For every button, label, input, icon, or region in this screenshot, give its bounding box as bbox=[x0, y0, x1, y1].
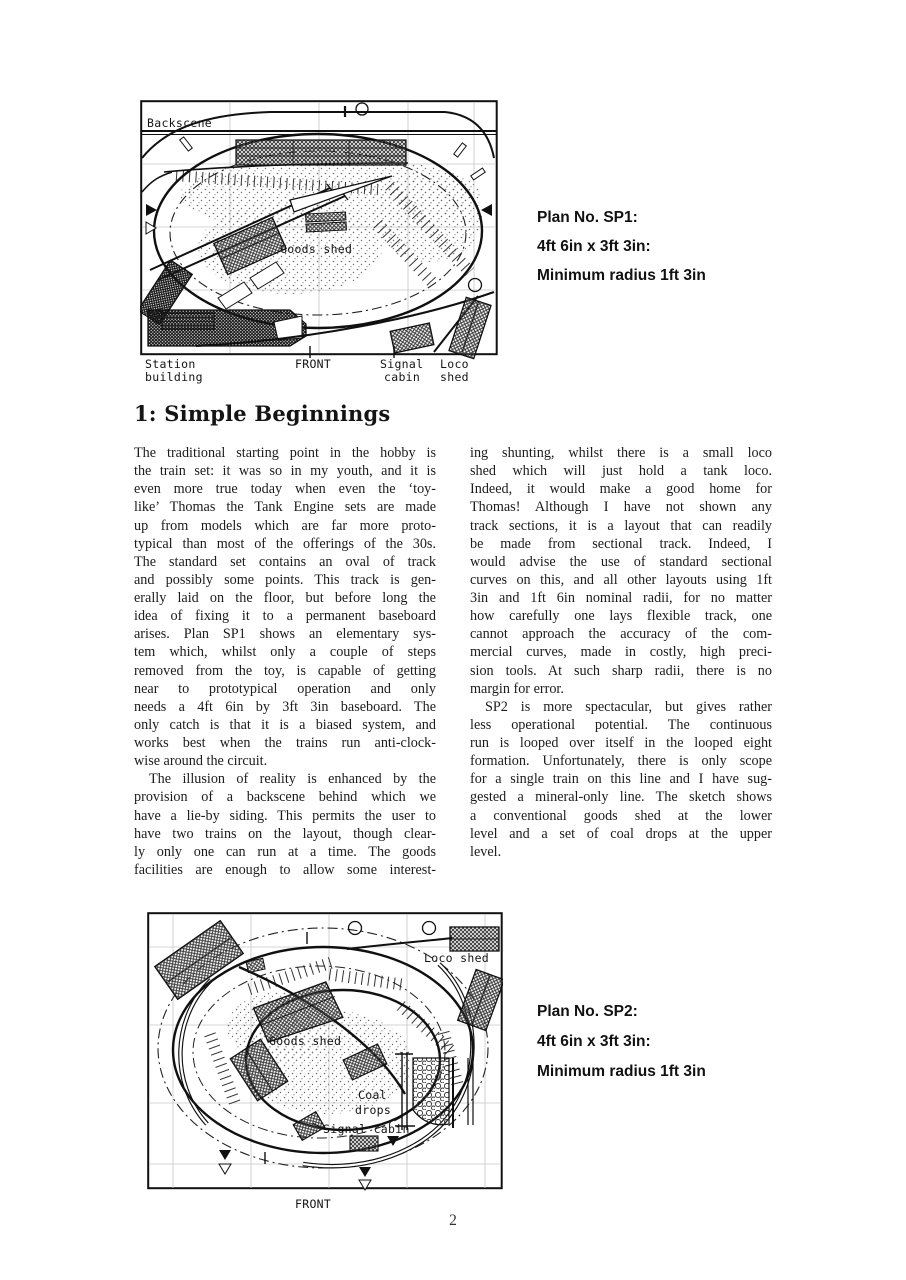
text-line: The illusion of reality is enhanced by t… bbox=[134, 770, 436, 788]
text-line: Thomas! Although I have not shown any bbox=[470, 498, 772, 516]
text-line: be made from sectional track. Indeed, I bbox=[470, 535, 772, 553]
text-line: less operational potential. The continuo… bbox=[470, 716, 772, 734]
sp1-label-goods-shed: Goods shed bbox=[280, 242, 352, 256]
text-line: 3in and 1ft 6in nominal radii, for no ma… bbox=[470, 589, 772, 607]
sp1-label-station-1: Station bbox=[145, 357, 196, 371]
text-line: have two trains on the layout, though cl… bbox=[134, 825, 436, 843]
book-page: Backscene Goods shed Station building FR… bbox=[0, 0, 906, 1280]
text-line: curves on this, and all other layouts us… bbox=[470, 571, 772, 589]
text-line: how carefully one lays flexible track, o… bbox=[470, 607, 772, 625]
text-line: gested a mineral-only line. The sketch s… bbox=[470, 788, 772, 806]
text-line: cannot approach the accuracy of the com- bbox=[470, 625, 772, 643]
sp2-caption-line2: 4ft 6in x 3ft 3in: bbox=[537, 1027, 706, 1057]
sp2-label-loco-shed: Loco shed bbox=[424, 951, 489, 965]
sp2-small-building bbox=[350, 1136, 378, 1151]
text-line: shed which will just hold a tank loco. bbox=[470, 462, 772, 480]
page-number: 2 bbox=[0, 1212, 906, 1230]
sp1-label-signal-2: cabin bbox=[384, 370, 420, 384]
sp1-label-station-2: building bbox=[145, 370, 203, 384]
text-line: even more true today when even the ‘toy- bbox=[134, 480, 436, 498]
text-line: like’ Thomas the Tank Engine sets are ma… bbox=[134, 498, 436, 516]
sp2-loco-shed bbox=[450, 927, 499, 951]
text-line: works best when the trains run anti-cloc… bbox=[134, 734, 436, 752]
track-plan-sp2-figure: Loco shed Goods shed Coal drops Signal c… bbox=[147, 912, 503, 1214]
text-line: and possibly some points. This track is … bbox=[134, 571, 436, 589]
text-line: would advise the use of standard section… bbox=[470, 553, 772, 571]
text-line: Indeed, it would make a good home for bbox=[470, 480, 772, 498]
text-line: mercial curves, made in costly, high pre… bbox=[470, 643, 772, 661]
sp2-label-coal-2: drops bbox=[355, 1103, 391, 1117]
text-line: The traditional starting point in the ho… bbox=[134, 444, 436, 462]
text-line: near to prototypical operation and only bbox=[134, 680, 436, 698]
body-column-right: ing shunting, whilst there is a small lo… bbox=[470, 444, 772, 861]
sp1-label-loco-1: Loco bbox=[440, 357, 469, 371]
text-line: tem which, whilst only a couple of steps bbox=[134, 643, 436, 661]
text-line: up from models which are far more proto- bbox=[134, 517, 436, 535]
text-line: a conventional goods shed at the lower bbox=[470, 807, 772, 825]
sp2-label-front: FRONT bbox=[295, 1197, 331, 1211]
text-line: have a lie-by siding. This permits the u… bbox=[134, 807, 436, 825]
sp1-label-front: FRONT bbox=[295, 357, 331, 371]
sp2-label-coal-1: Coal bbox=[358, 1088, 387, 1102]
sp2-caption-line1: Plan No. SP2: bbox=[537, 997, 706, 1027]
text-line: removed from the toy, is capable of gett… bbox=[134, 662, 436, 680]
track-plan-sp1-figure: Backscene Goods shed Station building FR… bbox=[140, 100, 498, 388]
sp2-label-signal-cabin: Signal cabin bbox=[323, 1122, 410, 1136]
text-line: idea of fixing it to a permanent baseboa… bbox=[134, 607, 436, 625]
text-line: wise around the circuit. bbox=[134, 752, 436, 770]
text-line: erally laid on the floor, but before lon… bbox=[134, 589, 436, 607]
text-line: ly only one can run at a time. The goods bbox=[134, 843, 436, 861]
sp1-caption: Plan No. SP1: 4ft 6in x 3ft 3in: Minimum… bbox=[537, 203, 706, 290]
text-line: SP2 is more spectacular, but gives rathe… bbox=[470, 698, 772, 716]
sp1-caption-line2: 4ft 6in x 3ft 3in: bbox=[537, 232, 706, 261]
text-line: for a single train on this line and I ha… bbox=[470, 770, 772, 788]
sp1-label-signal-1: Signal bbox=[380, 357, 423, 371]
text-line: run is looped over itself in the looped … bbox=[470, 734, 772, 752]
text-line: level and a set of coal drops at the upp… bbox=[470, 825, 772, 843]
text-line: provision of a backscene behind which we bbox=[134, 788, 436, 806]
sp1-label-loco-2: shed bbox=[440, 370, 469, 384]
text-line: sion tools. At such sharp radii, there i… bbox=[470, 662, 772, 680]
sp2-caption: Plan No. SP2: 4ft 6in x 3ft 3in: Minimum… bbox=[537, 997, 706, 1087]
text-line: level. bbox=[470, 843, 772, 861]
sp2-caption-line3: Minimum radius 1ft 3in bbox=[537, 1057, 706, 1087]
text-line: The standard set contains an oval of tra… bbox=[134, 553, 436, 571]
text-line: track sections, it is a layout that can … bbox=[470, 517, 772, 535]
text-line: typical than most of the offerings of th… bbox=[134, 535, 436, 553]
text-line: needs a 4ft 6in by 3ft 3in baseboard. Th… bbox=[134, 698, 436, 716]
text-line: arises. Plan SP1 shows an elementary sys… bbox=[134, 625, 436, 643]
section-heading: 1: Simple Beginnings bbox=[134, 401, 390, 426]
sp1-label-backscene: Backscene bbox=[147, 116, 212, 130]
sp1-lieby-train bbox=[236, 140, 406, 165]
text-line: margin for error. bbox=[470, 680, 772, 698]
sp1-caption-line3: Minimum radius 1ft 3in bbox=[537, 261, 706, 290]
sp1-caption-line1: Plan No. SP1: bbox=[537, 203, 706, 232]
body-column-left: The traditional starting point in the ho… bbox=[134, 444, 436, 879]
text-line: only catch is that it is a biased system… bbox=[134, 716, 436, 734]
sp2-label-goods-shed: Goods shed bbox=[269, 1034, 341, 1048]
text-line: the train set: it was so in my youth, an… bbox=[134, 462, 436, 480]
text-line: ing shunting, whilst there is a small lo… bbox=[470, 444, 772, 462]
text-line: formation. Unfortunately, there is only … bbox=[470, 752, 772, 770]
text-line: facilities are enough to allow some inte… bbox=[134, 861, 436, 879]
